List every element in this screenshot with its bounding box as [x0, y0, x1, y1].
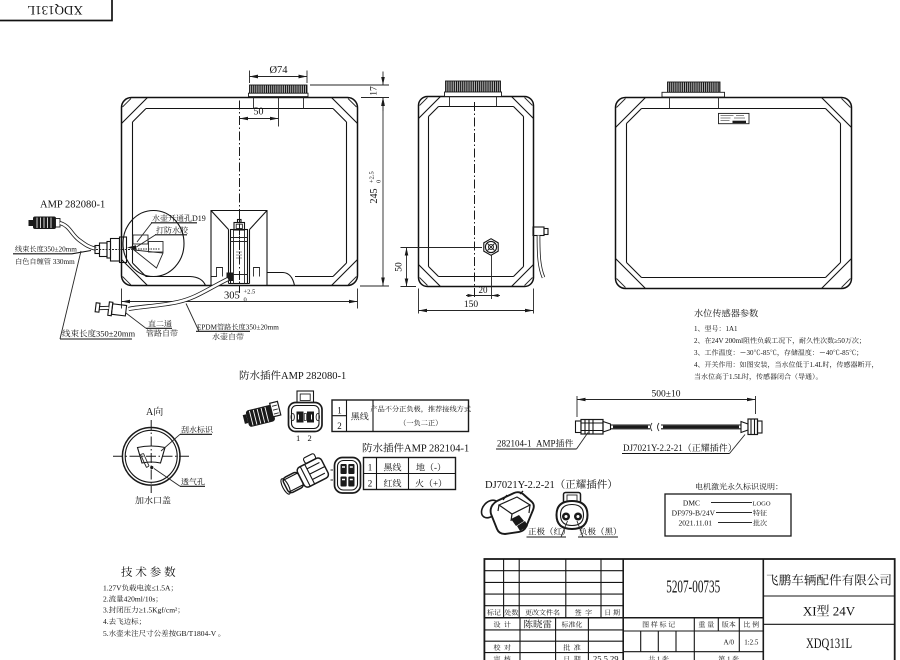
svg-text:校 对: 校 对 — [493, 644, 511, 652]
svg-text:处数: 处数 — [504, 609, 518, 617]
svg-text:加水口盖: 加水口盖 — [135, 496, 171, 506]
svg-text:2: 2 — [337, 421, 342, 431]
svg-text:DJ7021Y-2.2-21（正耀插件）: DJ7021Y-2.2-21（正耀插件） — [623, 443, 737, 453]
svg-text:DJ7021Y-2.2-21（正耀插件）: DJ7021Y-2.2-21（正耀插件） — [485, 479, 618, 491]
svg-text:A向: A向 — [146, 406, 163, 418]
svg-text:0: 0 — [376, 180, 383, 183]
svg-text:重 量: 重 量 — [698, 621, 714, 629]
svg-text:防水插件AMP 282104-1: 防水插件AMP 282104-1 — [362, 443, 469, 455]
svg-text:第 1 张: 第 1 张 — [718, 656, 739, 660]
svg-text:刮水标识: 刮水标识 — [181, 426, 214, 435]
svg-text:1: 1 — [296, 433, 300, 443]
svg-text:1: 1 — [368, 463, 373, 473]
svg-text:透气孔: 透气孔 — [181, 478, 205, 487]
svg-text:比 例: 比 例 — [743, 621, 759, 629]
svg-text:5.水壶未注尺寸公差按GB/T1804-V 。: 5.水壶未注尺寸公差按GB/T1804-V 。 — [103, 629, 225, 638]
svg-text:线束长度350±20mm: 线束长度350±20mm — [15, 245, 77, 254]
svg-text:50: 50 — [395, 262, 405, 272]
svg-text:Ø74: Ø74 — [269, 65, 288, 76]
svg-text:审 核: 审 核 — [493, 656, 511, 660]
svg-text:设 计: 设 计 — [493, 621, 511, 629]
svg-text:2、在24V 200ml阻性负载工况下，耐久性次数≥50万次: 2、在24V 200ml阻性负载工况下，耐久性次数≥50万次； — [694, 337, 866, 345]
svg-text:17: 17 — [370, 86, 380, 96]
svg-text:2.流量420ml/10s；: 2.流量420ml/10s； — [103, 595, 163, 604]
svg-text:版本: 版本 — [722, 621, 736, 629]
svg-text:20: 20 — [479, 285, 489, 295]
svg-text:305: 305 — [224, 291, 240, 302]
svg-text:2: 2 — [368, 479, 373, 489]
svg-text:红线: 红线 — [383, 479, 401, 489]
svg-text:标准化: 标准化 — [562, 621, 583, 629]
svg-text:日 期: 日 期 — [563, 656, 581, 660]
svg-text:共 1 张: 共 1 张 — [648, 656, 669, 660]
svg-text:特征: 特征 — [753, 510, 767, 518]
svg-text:当水位高于1.5L时，传感器闭合（导通）。: 当水位高于1.5L时，传感器闭合（导通）。 — [694, 373, 823, 381]
svg-text:+2.5: +2.5 — [369, 171, 376, 183]
svg-text:XDQ131L: XDQ131L — [806, 634, 852, 651]
svg-text:打防水胶: 打防水胶 — [156, 226, 189, 235]
svg-text:陈晓雷: 陈晓雷 — [524, 619, 553, 631]
svg-text:4、开关作用：如图安装，当水位低于1.4L时，传感器断开，: 4、开关作用：如图安装，当水位低于1.4L时，传感器断开， — [694, 361, 879, 369]
svg-text:白色自缠管 330mm: 白色自缠管 330mm — [15, 257, 75, 266]
svg-text:LOGO: LOGO — [753, 501, 771, 508]
svg-text:A/0: A/0 — [724, 639, 735, 647]
svg-text:飞鹏车辆配件有限公司: 飞鹏车辆配件有限公司 — [766, 574, 892, 588]
svg-text:500±10: 500±10 — [652, 390, 681, 400]
svg-text:3、工作温度：－30℃-85℃，存储温度：－40℃-85℃；: 3、工作温度：－30℃-85℃，存储温度：－40℃-85℃； — [694, 349, 863, 357]
svg-text:2: 2 — [308, 433, 312, 443]
svg-text:防水插件AMP 282080-1: 防水插件AMP 282080-1 — [239, 370, 346, 382]
svg-text:DF979-B/24V: DF979-B/24V — [672, 509, 716, 518]
svg-text:批次: 批次 — [753, 520, 767, 528]
svg-text:线束长度350±20mm: 线束长度350±20mm — [62, 329, 136, 339]
svg-text:正极（红）: 正极（红） — [528, 527, 571, 537]
svg-text:水位传感器参数: 水位传感器参数 — [694, 309, 758, 319]
svg-text:地（-）: 地（-） — [416, 463, 446, 473]
svg-text:日 期: 日 期 — [604, 609, 620, 617]
svg-text:黑线: 黑线 — [351, 412, 369, 422]
svg-text:XDQ131L: XDQ131L — [27, 3, 83, 18]
svg-text:0: 0 — [244, 297, 247, 304]
svg-text:150: 150 — [464, 300, 479, 310]
svg-text:水壶开通孔D19: 水壶开通孔D19 — [152, 214, 206, 223]
svg-text:1.27V负载电流≤1.5A；: 1.27V负载电流≤1.5A； — [103, 584, 178, 593]
svg-text:黑线: 黑线 — [383, 463, 401, 473]
svg-text:3.封闭压力≥1.5Kgf/cm²；: 3.封闭压力≥1.5Kgf/cm²； — [103, 606, 185, 615]
svg-text:4.去飞边标；: 4.去飞边标； — [103, 617, 146, 626]
svg-text:AMP 282080-1: AMP 282080-1 — [40, 200, 105, 211]
svg-text:5207-00735: 5207-00735 — [666, 578, 720, 597]
svg-text:+2.5: +2.5 — [244, 289, 256, 296]
svg-text:批 准: 批 准 — [563, 644, 581, 652]
svg-text:50: 50 — [254, 107, 264, 118]
svg-text:标记: 标记 — [487, 609, 501, 617]
svg-text:1:2.5: 1:2.5 — [744, 639, 759, 647]
svg-text:EPDM管路长度350±20mm: EPDM管路长度350±20mm — [197, 323, 279, 332]
svg-text:管路自带: 管路自带 — [146, 329, 178, 338]
svg-text:图 样 标 记: 图 样 标 记 — [642, 621, 675, 629]
svg-text:签 字: 签 字 — [575, 609, 593, 617]
svg-text:245: 245 — [369, 189, 380, 204]
svg-text:1、型号：1A1: 1、型号：1A1 — [694, 325, 738, 333]
svg-text:1: 1 — [337, 406, 342, 416]
svg-text:火（+）: 火（+） — [415, 479, 447, 489]
svg-text:电机激光永久标识说明：: 电机激光永久标识说明： — [695, 483, 783, 492]
svg-text:（一负二正）: （一负二正） — [399, 419, 442, 428]
svg-text:技 术 参 数: 技 术 参 数 — [121, 566, 176, 579]
svg-text:25.5.29: 25.5.29 — [593, 654, 619, 660]
svg-text:产品不分正负极，推荐接线方式: 产品不分正负极，推荐接线方式 — [370, 405, 471, 414]
svg-text:水壶自带: 水壶自带 — [212, 333, 244, 342]
svg-text:2021.11.01: 2021.11.01 — [679, 519, 713, 528]
svg-text:直二通: 直二通 — [148, 320, 172, 329]
svg-text:更改文件名: 更改文件名 — [525, 609, 560, 617]
svg-text:DMC: DMC — [683, 499, 700, 508]
svg-text:XI型 24V: XI型 24V — [803, 604, 856, 619]
svg-text:负极（黑）: 负极（黑） — [579, 527, 622, 537]
svg-text:282104-1 AMP插件: 282104-1 AMP插件 — [497, 439, 574, 449]
